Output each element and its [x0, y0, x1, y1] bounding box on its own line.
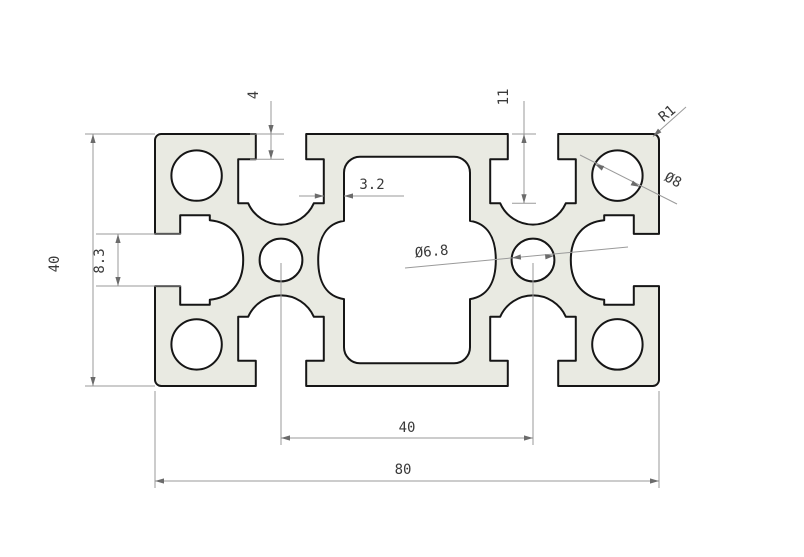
profile-cross-section: [155, 134, 659, 386]
dim-wall-thickness: 3.2: [299, 177, 404, 199]
arrowhead: [545, 254, 554, 259]
arrowhead: [512, 254, 521, 259]
profile-drawing: 40 8.3 4 11 3.2 Ø6.8: [0, 0, 804, 557]
arrowhead: [315, 193, 324, 198]
arrowhead: [268, 150, 273, 159]
dim-corner-hole-label: Ø8: [662, 169, 684, 191]
dim-corner-radius: R1: [653, 102, 686, 136]
arrowhead: [524, 435, 533, 440]
arrowhead: [90, 377, 95, 386]
arrowhead: [521, 134, 526, 143]
dim-width-label: 80: [395, 462, 412, 478]
dim-mouth-depth-label: 4: [246, 91, 262, 99]
arrowhead: [281, 435, 290, 440]
dim-center-hole-label: Ø6.8: [414, 243, 449, 262]
arrowhead: [90, 134, 95, 143]
arrowhead: [344, 193, 353, 198]
arrowhead: [650, 478, 659, 483]
arrowhead: [155, 478, 164, 483]
dim-height-label: 40: [47, 256, 63, 273]
dim-corner-radius-label: R1: [656, 102, 679, 125]
dim-overall-width: 80: [155, 391, 659, 488]
dim-end-slot-label: 8.3: [92, 248, 108, 273]
arrowhead: [115, 277, 120, 286]
dim-end-slot-opening: 8.3: [92, 234, 181, 286]
arrowhead: [268, 125, 273, 134]
dim-hole-spacing-label: 40: [399, 420, 416, 436]
drawing-canvas: 40 8.3 4 11 3.2 Ø6.8: [0, 0, 804, 557]
dim-wall-label: 3.2: [359, 177, 384, 193]
arrowhead: [595, 164, 604, 170]
arrowhead: [115, 234, 120, 243]
arrowhead: [521, 194, 526, 203]
dim-cavity-depth-label: 11: [496, 89, 512, 106]
